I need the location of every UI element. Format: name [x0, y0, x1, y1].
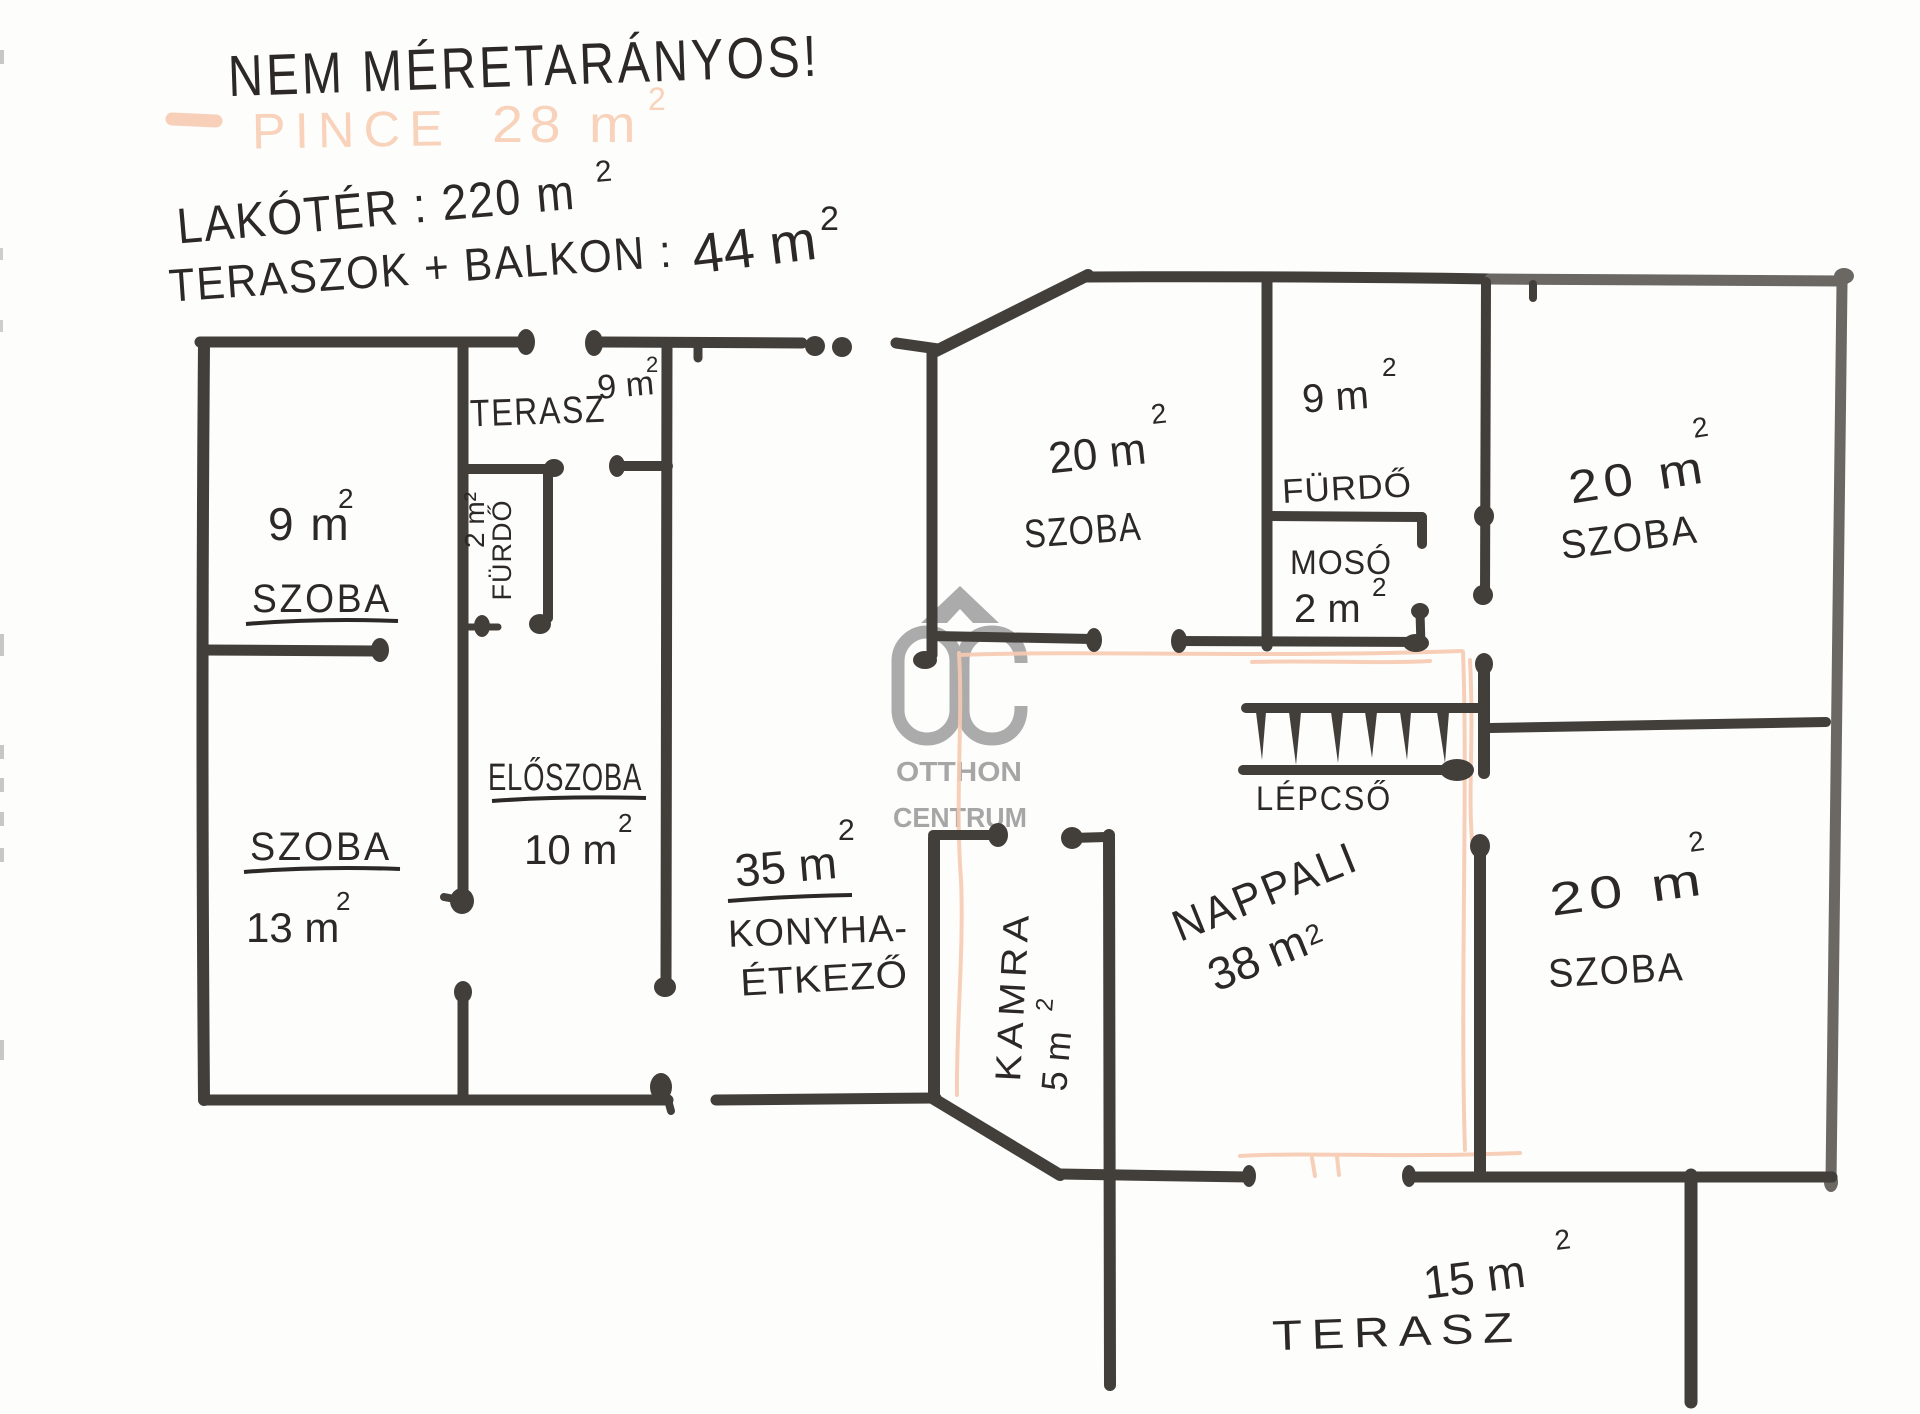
svg-text:SZOBA: SZOBA — [250, 825, 392, 869]
svg-text:13 m: 13 m — [246, 904, 339, 951]
svg-text:2: 2 — [618, 808, 632, 838]
svg-text:5 m: 5 m — [1033, 1029, 1079, 1092]
svg-text:FÜRDŐ: FÜRDŐ — [486, 500, 517, 601]
svg-text:KONYHA-: KONYHA- — [727, 908, 908, 956]
svg-text:FÜRDŐ: FÜRDŐ — [1281, 466, 1413, 511]
svg-text:SZOBA: SZOBA — [1547, 945, 1685, 996]
svg-text:28 m: 28 m — [492, 96, 642, 154]
svg-text:TERASZ: TERASZ — [1271, 1304, 1522, 1360]
svg-text:LÉPCSŐ: LÉPCSŐ — [1256, 780, 1392, 818]
svg-text:2: 2 — [1382, 352, 1396, 382]
svg-text:2: 2 — [336, 886, 350, 916]
svg-text:2: 2 — [594, 155, 614, 189]
svg-text:2: 2 — [1031, 997, 1059, 1013]
svg-text:ELŐSZOBA: ELŐSZOBA — [488, 756, 642, 799]
svg-text:2: 2 — [820, 200, 839, 238]
svg-text:35 m: 35 m — [732, 836, 838, 897]
svg-text:2 m: 2 m — [1294, 587, 1361, 631]
svg-text:SZOBA: SZOBA — [252, 577, 392, 621]
svg-text:2: 2 — [338, 483, 354, 514]
svg-text:ÉTKEZŐ: ÉTKEZŐ — [739, 953, 909, 1005]
svg-text:2 m²: 2 m² — [459, 492, 490, 548]
svg-text:2: 2 — [838, 814, 855, 847]
svg-text:PINCE: PINCE — [252, 100, 453, 159]
svg-text:SZOBA: SZOBA — [1023, 505, 1144, 557]
svg-text:9 m: 9 m — [1301, 373, 1371, 422]
svg-text:2: 2 — [646, 352, 658, 377]
svg-text:2: 2 — [1149, 398, 1168, 430]
svg-text:20 m: 20 m — [1046, 424, 1148, 483]
svg-text:TERASZ: TERASZ — [469, 389, 606, 436]
svg-text:2: 2 — [1372, 572, 1386, 602]
svg-text:10 m: 10 m — [524, 826, 617, 873]
